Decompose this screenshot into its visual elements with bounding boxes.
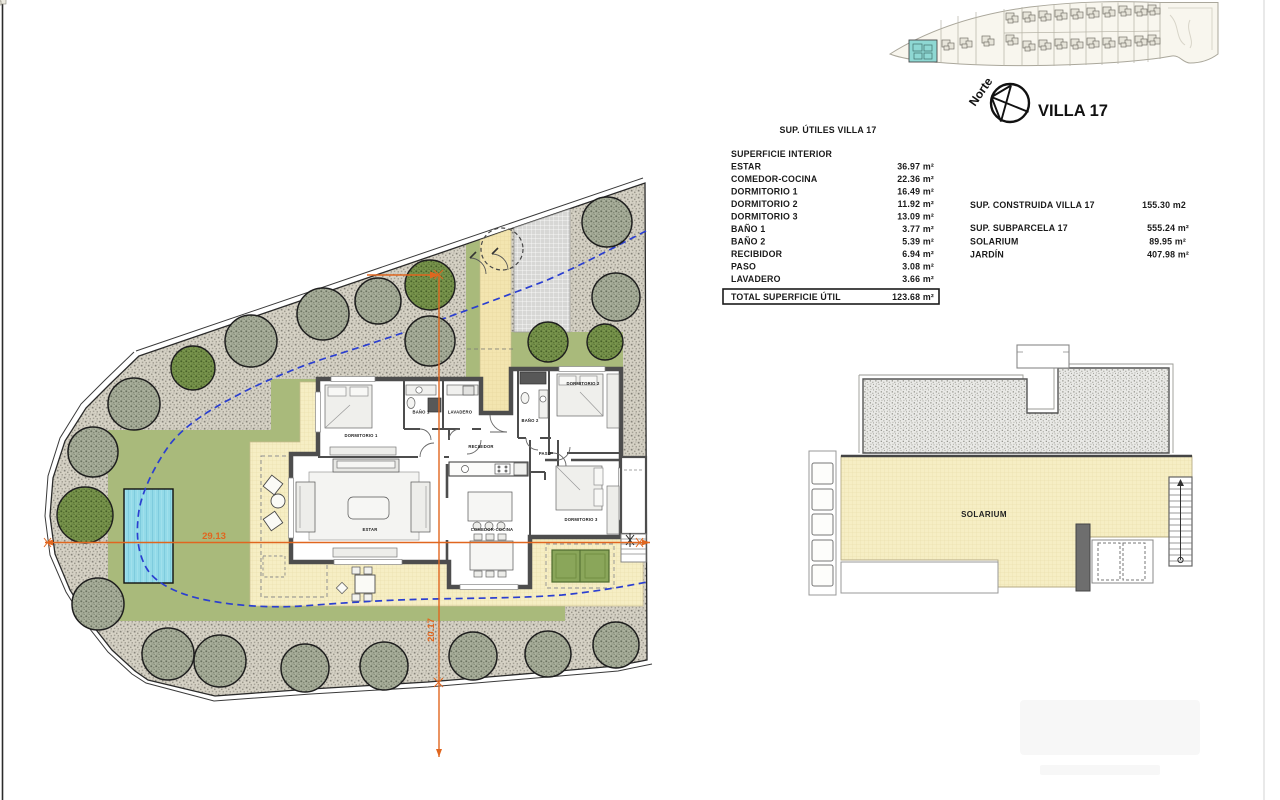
svg-text:155.30 m2: 155.30 m2 [1142,200,1186,210]
svg-text:DORMITORIO 1: DORMITORIO 1 [731,187,798,197]
svg-text:ESTAR: ESTAR [363,527,378,532]
svg-text:DORMITORIO 2: DORMITORIO 2 [731,199,798,209]
svg-text:16.49 m²: 16.49 m² [897,187,934,197]
svg-text:555.24 m²: 555.24 m² [1147,223,1189,233]
svg-text:DORMITORIO 1: DORMITORIO 1 [344,433,378,438]
svg-text:RECIBIDOR: RECIBIDOR [468,444,493,449]
svg-text:3.66 m²: 3.66 m² [902,274,934,284]
svg-text:PASO: PASO [539,451,552,456]
svg-text:11.92 m²: 11.92 m² [898,199,934,209]
svg-text:3.77 m²: 3.77 m² [902,224,934,234]
svg-text:JARDÍN: JARDÍN [970,250,1004,260]
svg-text:SUP. ÚTILES VILLA 17: SUP. ÚTILES VILLA 17 [780,124,877,135]
svg-text:LAVADERO: LAVADERO [448,410,473,415]
svg-text:407.98 m²: 407.98 m² [1147,250,1189,260]
svg-text:COMEDOR-COCINA: COMEDOR-COCINA [471,527,514,532]
svg-text:TOTAL SUPERFICIE ÚTIL: TOTAL SUPERFICIE ÚTIL [731,291,841,302]
svg-text:VILLA 17: VILLA 17 [1038,102,1108,120]
svg-text:DORMITORIO 3: DORMITORIO 3 [731,212,798,222]
svg-text:BAÑO 1: BAÑO 1 [731,224,765,234]
svg-text:RECIBIDOR: RECIBIDOR [731,249,783,259]
svg-text:SUP. SUBPARCELA 17: SUP. SUBPARCELA 17 [970,223,1068,233]
svg-text:BAÑO 1: BAÑO 1 [412,410,429,415]
svg-text:20.17: 20.17 [426,618,437,642]
svg-text:DORMITORIO 2: DORMITORIO 2 [566,381,600,386]
svg-text:6.94 m²: 6.94 m² [902,249,934,259]
svg-text:29.13: 29.13 [202,531,226,542]
svg-text:PASO: PASO [731,262,756,272]
svg-text:ESTAR: ESTAR [731,162,762,172]
svg-text:SUPERFICIE INTERIOR: SUPERFICIE INTERIOR [731,149,833,159]
svg-text:SUP. CONSTRUIDA VILLA 17: SUP. CONSTRUIDA VILLA 17 [970,200,1095,210]
svg-text:COMEDOR-COCINA: COMEDOR-COCINA [731,174,818,184]
svg-text:3.08 m²: 3.08 m² [902,262,934,272]
svg-text:SOLARIUM: SOLARIUM [970,237,1019,247]
svg-text:BAÑO 2: BAÑO 2 [731,237,765,247]
svg-text:13.09 m²: 13.09 m² [897,212,934,222]
svg-text:22.36 m²: 22.36 m² [897,174,934,184]
svg-text:LAVADERO: LAVADERO [731,274,781,284]
svg-text:123.68 m²: 123.68 m² [892,292,934,302]
svg-text:36.97 m²: 36.97 m² [897,162,934,172]
svg-text:DORMITORIO 3: DORMITORIO 3 [564,517,598,522]
svg-text:SOLARIUM: SOLARIUM [961,510,1007,519]
svg-text:89.95 m²: 89.95 m² [1149,237,1186,247]
svg-text:BAÑO 2: BAÑO 2 [521,418,538,423]
svg-text:5.39 m²: 5.39 m² [902,237,934,247]
